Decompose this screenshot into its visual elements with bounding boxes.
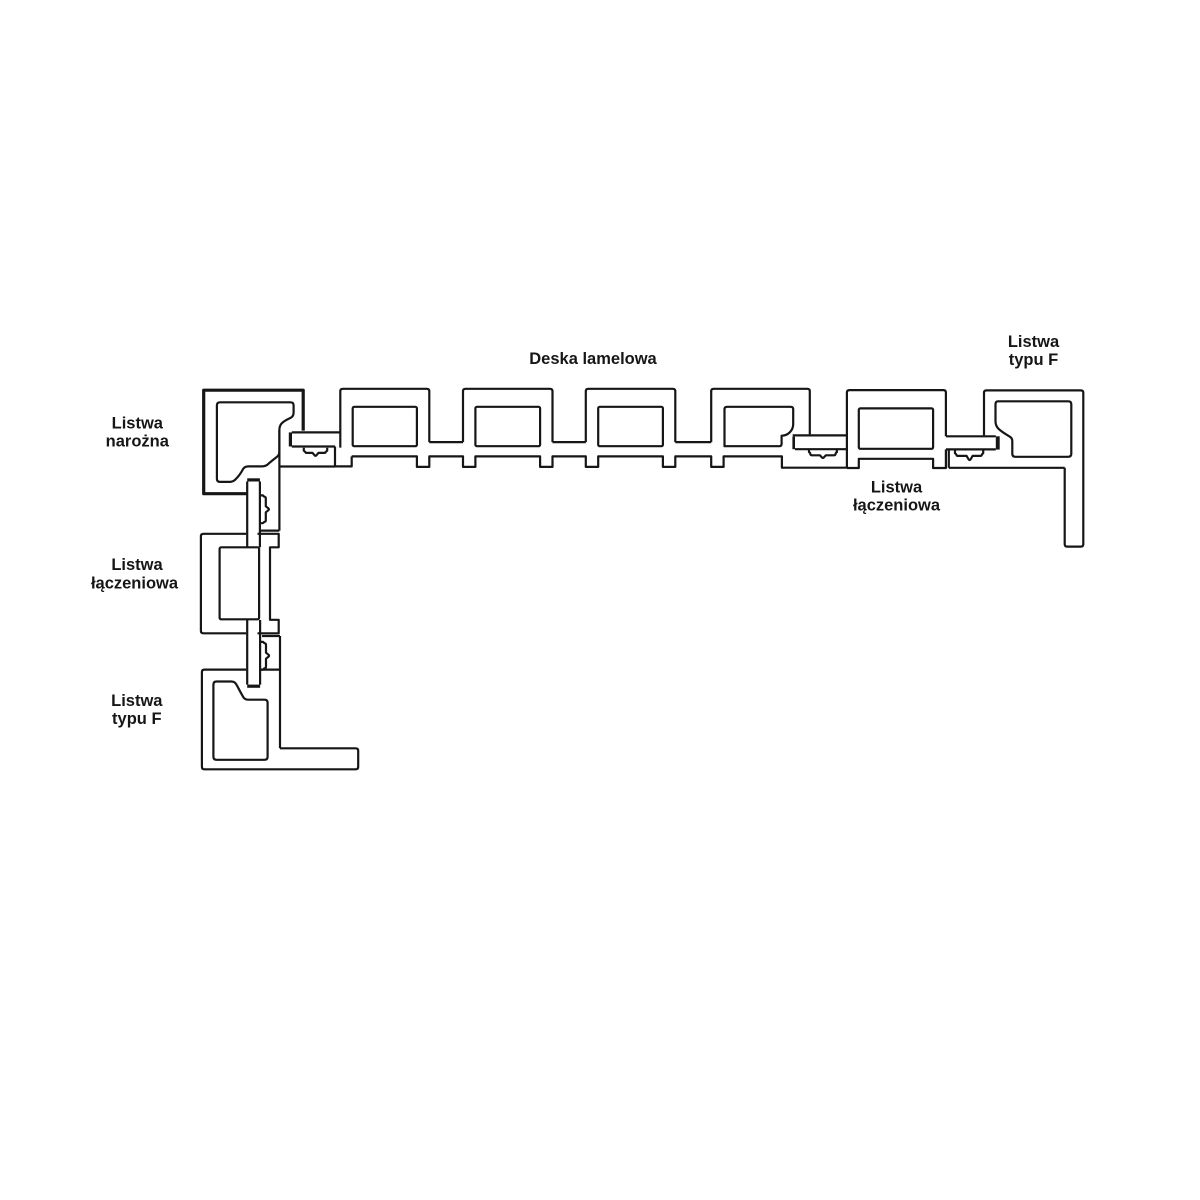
svg-text:typu F: typu F <box>112 710 162 728</box>
svg-text:narożna: narożna <box>106 433 170 451</box>
svg-text:Listwa: Listwa <box>871 479 923 497</box>
svg-text:łączeniowa: łączeniowa <box>853 497 941 515</box>
svg-text:łączeniowa: łączeniowa <box>91 575 179 593</box>
svg-text:Listwa: Listwa <box>111 692 163 710</box>
svg-text:Listwa: Listwa <box>112 415 164 433</box>
svg-text:typu F: typu F <box>1009 351 1059 369</box>
svg-text:Deska lamelowa: Deska lamelowa <box>529 350 657 368</box>
svg-text:Listwa: Listwa <box>1008 333 1060 351</box>
svg-text:Listwa: Listwa <box>111 556 163 574</box>
